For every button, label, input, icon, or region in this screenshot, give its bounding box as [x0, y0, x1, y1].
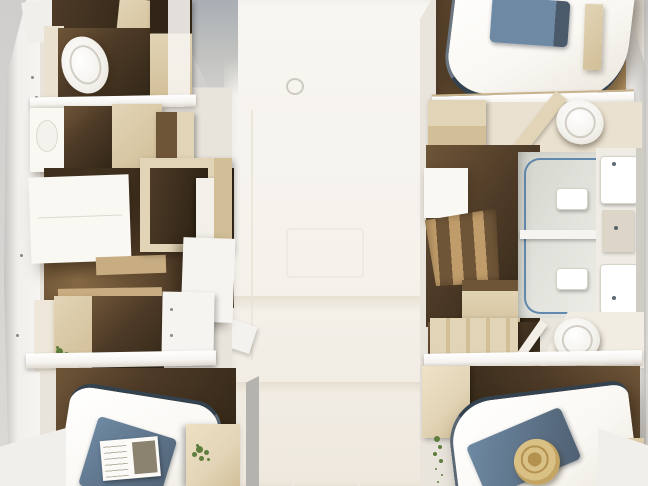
stbd-vanity-faucet-1	[612, 162, 616, 166]
catamaran-floorplan-render	[0, 0, 648, 486]
stbd-fwd-blue-blanket	[489, 0, 570, 48]
deck-hatch-ring-icon	[286, 78, 304, 95]
port-head2-floor	[64, 106, 116, 172]
port-hatch-hinge-dot-3	[20, 254, 23, 257]
stbd-shower-partition	[520, 230, 604, 239]
stbd-vanity-sink-1	[600, 156, 638, 204]
deck-panel-forward	[286, 228, 364, 278]
deck-step-break-2	[230, 382, 448, 394]
stbd-vanity-mirror-strip	[636, 148, 644, 332]
stbd-vanity-sink-2	[600, 264, 638, 314]
stbd-vanity-shelf-item	[614, 226, 618, 230]
stbd-trailing-plant-icon	[434, 436, 440, 442]
deck-seam	[251, 110, 253, 360]
port-inner-deck-strip	[168, 0, 190, 96]
bow-gap-shadow	[186, 0, 238, 96]
stbd-fwd-head-lockers	[428, 100, 486, 150]
deck-gap-sliver-left	[246, 376, 259, 486]
stbd-vanity-shelf	[602, 210, 634, 252]
port-hatch-hinge-dot-4	[16, 334, 19, 337]
port-bedside-table	[186, 424, 240, 486]
port-vanity-basin	[36, 120, 58, 152]
port-dresser	[29, 174, 132, 263]
port-bedside-plant-icon	[196, 446, 203, 453]
port-door-hinge-dot-1	[170, 308, 173, 311]
deck-panel-aft	[292, 452, 360, 486]
port-door-hinge-dot-2	[170, 334, 173, 337]
stbd-fwd-side-panel	[583, 4, 603, 71]
port-dresser-base	[96, 255, 167, 275]
port-berth-open-magazine	[100, 436, 161, 481]
port-hatch-hinge-dot-1	[31, 76, 34, 79]
magazine-page-right	[132, 440, 158, 474]
stbd-shower-stall2-fixture	[556, 268, 588, 290]
stbd-shower-stall1-fixture	[556, 188, 588, 210]
magazine-page-left	[103, 442, 129, 478]
stbd-vanity-faucet-2	[612, 296, 616, 300]
deck-step-break-1	[234, 296, 448, 312]
stbd-mid-white-cabinet	[424, 168, 468, 218]
stbd-companionway-stairs	[424, 208, 503, 289]
